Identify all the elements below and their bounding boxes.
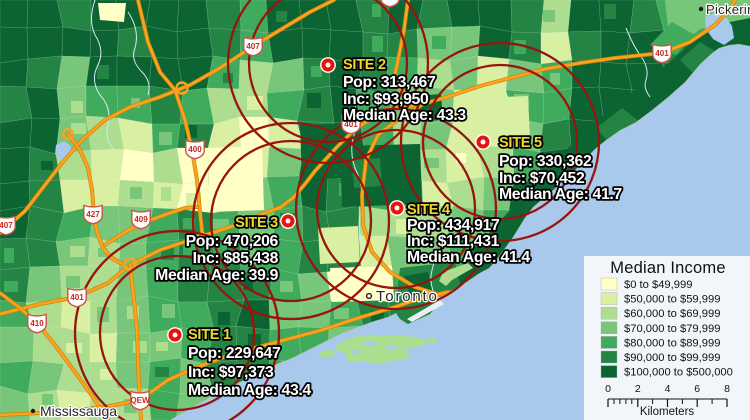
svg-text:$0 to $49,999: $0 to $49,999: [624, 279, 692, 291]
svg-text:427: 427: [86, 210, 100, 219]
svg-text:$70,000 to $79,999: $70,000 to $79,999: [624, 323, 720, 335]
svg-text:Pop: 330,362: Pop: 330,362: [499, 153, 592, 170]
svg-text:Pop: 470,206: Pop: 470,206: [186, 233, 279, 250]
svg-text:404: 404: [383, 0, 397, 2]
svg-text:SITE 1: SITE 1: [188, 327, 231, 343]
svg-text:Median Age: 41.4: Median Age: 41.4: [407, 249, 530, 266]
svg-text:401: 401: [655, 49, 669, 58]
svg-text:Median Age: 43.4: Median Age: 43.4: [188, 382, 311, 399]
svg-text:QEW: QEW: [130, 396, 150, 405]
svg-text:Pop: 313,467: Pop: 313,467: [343, 74, 436, 91]
svg-text:400: 400: [188, 145, 202, 154]
svg-text:Inc: $85,438: Inc: $85,438: [193, 250, 279, 267]
svg-text:Median Age: 41.7: Median Age: 41.7: [499, 186, 622, 203]
svg-text:SITE 2: SITE 2: [343, 57, 386, 73]
svg-text:SITE 5: SITE 5: [499, 135, 542, 151]
svg-text:8: 8: [724, 383, 730, 395]
svg-text:Median Age: 39.9: Median Age: 39.9: [155, 267, 278, 284]
svg-text:SITE 4: SITE 4: [407, 202, 450, 218]
svg-text:Median Income: Median Income: [610, 259, 725, 277]
svg-text:Toronto: Toronto: [376, 288, 439, 305]
svg-text:Pop: 434,917: Pop: 434,917: [407, 217, 500, 234]
svg-text:Median Age: 43.3: Median Age: 43.3: [343, 107, 466, 124]
svg-text:407: 407: [0, 221, 13, 230]
svg-text:Inc: $93,950: Inc: $93,950: [343, 91, 429, 108]
svg-text:410: 410: [30, 319, 44, 328]
svg-text:SITE 3: SITE 3: [235, 215, 278, 231]
svg-text:0: 0: [605, 383, 611, 395]
svg-text:409: 409: [134, 215, 148, 224]
svg-text:Kilometers: Kilometers: [640, 406, 695, 418]
svg-text:4: 4: [665, 383, 671, 395]
svg-text:Mississauga: Mississauga: [40, 403, 117, 419]
svg-text:$50,000 to $59,999: $50,000 to $59,999: [624, 294, 720, 306]
svg-text:$60,000 to $69,999: $60,000 to $69,999: [624, 308, 720, 320]
svg-text:Inc: $97,373: Inc: $97,373: [188, 364, 274, 381]
svg-text:$80,000 to $89,999: $80,000 to $89,999: [624, 337, 720, 349]
svg-text:407: 407: [246, 42, 260, 51]
svg-text:Inc: $111,431: Inc: $111,431: [407, 233, 500, 250]
svg-text:6: 6: [694, 383, 700, 395]
svg-text:$90,000 to $99,999: $90,000 to $99,999: [624, 352, 720, 364]
svg-text:Inc: $70,452: Inc: $70,452: [499, 170, 585, 187]
svg-text:Pop: 229,647: Pop: 229,647: [188, 345, 281, 362]
svg-text:2: 2: [635, 383, 641, 395]
svg-text:Pickering: Pickering: [706, 2, 750, 17]
svg-text:$100,000 to $500,000: $100,000 to $500,000: [624, 367, 733, 379]
svg-text:401: 401: [70, 293, 84, 302]
